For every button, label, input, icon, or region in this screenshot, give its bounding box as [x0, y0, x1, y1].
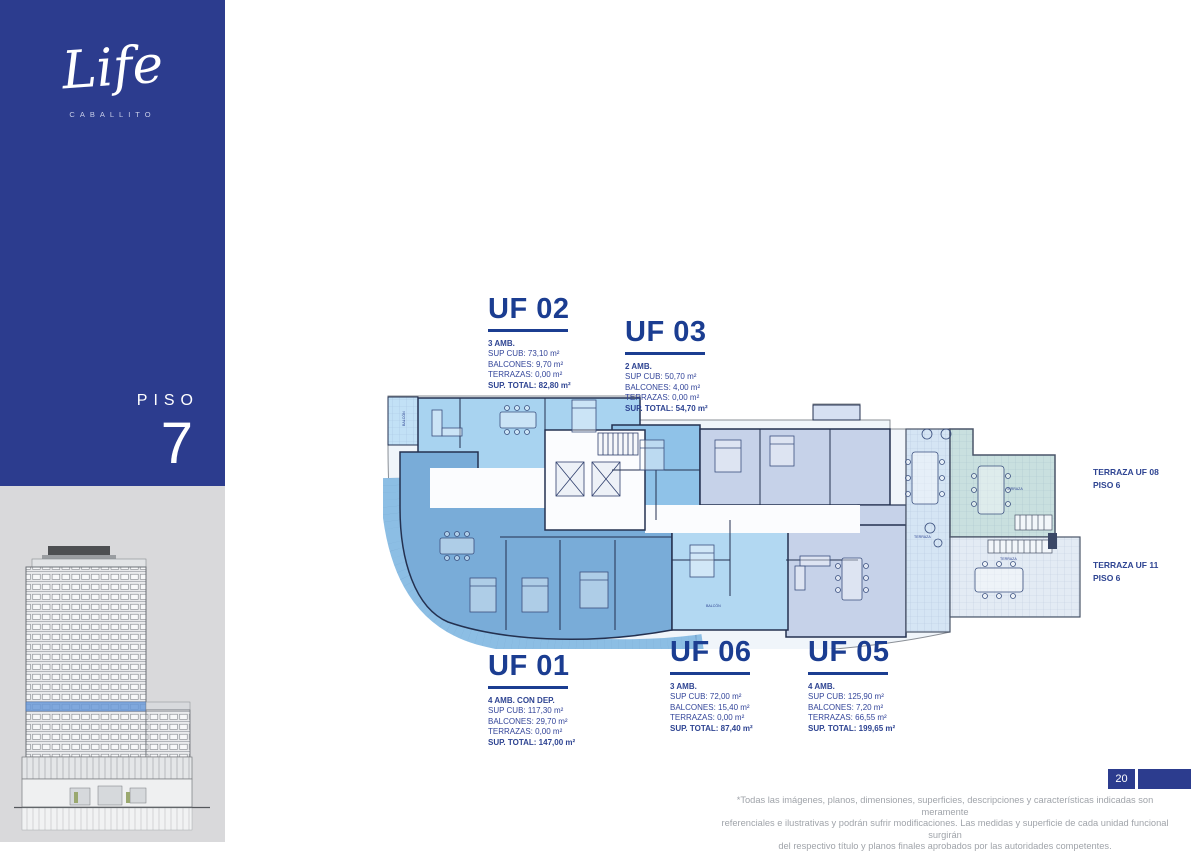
- balcon-label: BALCÓN: [706, 603, 721, 608]
- disclaimer-line: *Todas las imágenes, planos, dimensiones…: [715, 795, 1175, 818]
- unit-title-uf06: UF 06: [670, 636, 753, 669]
- unit-terrazas: TERRAZAS: 0,00 m²: [670, 713, 753, 724]
- balcon-label: BALCÓN: [401, 411, 406, 426]
- corridor-west: [430, 468, 562, 508]
- unit-stats-uf05: 4 AMB. SUP CUB: 125,90 m² BALCONES: 7,20…: [808, 682, 895, 735]
- unit-balcones: BALCONES: 7,20 m²: [808, 703, 895, 714]
- unit-terrazas: TERRAZAS: 66,55 m²: [808, 713, 895, 724]
- title-underline: [488, 686, 568, 689]
- disclaimer-line: del respectivo título y planos finales a…: [715, 841, 1175, 853]
- brand-logo-subtitle: CABALLITO: [0, 110, 225, 119]
- disclaimer-line: referenciales e ilustrativas y podrán su…: [715, 818, 1175, 841]
- terrace-title: TERRAZA UF 08: [1093, 466, 1159, 479]
- unit-stats-uf01: 4 AMB. CON DEP. SUP CUB: 117,30 m² BALCO…: [488, 696, 575, 749]
- terrace-label-uf11: TERRAZA UF 11 PISO 6: [1093, 559, 1158, 585]
- unit-sup-cub: SUP CUB: 117,30 m²: [488, 706, 575, 717]
- page-number-badge: 20: [1108, 769, 1135, 789]
- brochure-page: { "brand": { "logo_text": "Life", "logo_…: [0, 0, 1191, 842]
- elevation-floor7-highlight: [26, 702, 146, 711]
- unit-type: 4 AMB.: [808, 682, 895, 693]
- unit-stats-uf03: 2 AMB. SUP CUB: 50,70 m² BALCONES: 4,00 …: [625, 362, 708, 415]
- title-underline: [488, 329, 568, 332]
- floor-number: 7: [137, 414, 193, 475]
- unit-total: SUP. TOTAL: 82,80 m²: [488, 381, 571, 392]
- title-underline: [808, 672, 888, 675]
- terraza-label: TERRAZA: [1000, 557, 1017, 561]
- unit-balcones: BALCONES: 9,70 m²: [488, 360, 571, 371]
- unit-terrazas: TERRAZAS: 0,00 m²: [488, 727, 575, 738]
- brand-logo: Life: [0, 30, 227, 106]
- unit-title-uf02: UF 02: [488, 293, 571, 326]
- unit-sup-cub: SUP CUB: 125,90 m²: [808, 692, 895, 703]
- unit-total: SUP. TOTAL: 199,65 m²: [808, 724, 895, 735]
- unit-sup-cub: SUP CUB: 72,00 m²: [670, 692, 753, 703]
- unit-balcones: BALCONES: 4,00 m²: [625, 383, 708, 394]
- unit-title-uf03: UF 03: [625, 316, 708, 349]
- page-number: 20: [1115, 773, 1127, 785]
- unit-card-uf02: UF 02 3 AMB. SUP CUB: 73,10 m² BALCONES:…: [488, 293, 571, 391]
- unit-type: 2 AMB.: [625, 362, 708, 373]
- unit-terrazas: TERRAZAS: 0,00 m²: [625, 393, 708, 404]
- title-underline: [670, 672, 750, 675]
- unit-stats-uf06: 3 AMB. SUP CUB: 72,00 m² BALCONES: 15,40…: [670, 682, 753, 735]
- unit-balcones: BALCONES: 29,70 m²: [488, 717, 575, 728]
- unit-type: 4 AMB. CON DEP.: [488, 696, 575, 707]
- unit-title-uf05: UF 05: [808, 636, 895, 669]
- unit-card-uf05: UF 05 4 AMB. SUP CUB: 125,90 m² BALCONES…: [808, 636, 895, 734]
- unit-type: 3 AMB.: [670, 682, 753, 693]
- footer-disclaimer: *Todas las imágenes, planos, dimensiones…: [715, 795, 1175, 853]
- elevation-tower: [26, 567, 146, 757]
- unit-total: SUP. TOTAL: 147,00 m²: [488, 738, 575, 749]
- unit-sup-cub: SUP CUB: 73,10 m²: [488, 349, 571, 360]
- unit-total: SUP. TOTAL: 54,70 m²: [625, 404, 708, 415]
- corridor-east: [645, 505, 860, 533]
- elevation-low-wing: [146, 710, 190, 757]
- unit-type: 3 AMB.: [488, 339, 571, 350]
- unit-balcones: BALCONES: 15,40 m²: [670, 703, 753, 714]
- floor-indicator: PISO 7: [137, 392, 193, 475]
- unit-terrazas: TERRAZAS: 0,00 m²: [488, 370, 571, 381]
- floor-plan-drawing: BALCÓN BALCÓN TERRAZA TERRAZA TERRAZA: [383, 383, 1085, 649]
- unit-stats-uf02: 3 AMB. SUP CUB: 73,10 m² BALCONES: 9,70 …: [488, 339, 571, 392]
- floor-label: PISO: [137, 392, 199, 410]
- elevation-roof-cap: [48, 546, 110, 555]
- sidebar-panel: Life CABALLITO PISO 7: [0, 0, 225, 486]
- unit-sup-cub: SUP CUB: 50,70 m²: [625, 372, 708, 383]
- title-underline: [625, 352, 705, 355]
- building-elevation-drawing: [12, 542, 212, 840]
- unit-title-uf01: UF 01: [488, 650, 575, 683]
- terrace-floor: PISO 6: [1093, 479, 1159, 492]
- unit-total: SUP. TOTAL: 87,40 m²: [670, 724, 753, 735]
- terraza-label: TERRAZA: [1006, 487, 1023, 491]
- terrace-title: TERRAZA UF 11: [1093, 559, 1158, 572]
- unit-card-uf03: UF 03 2 AMB. SUP CUB: 50,70 m² BALCONES:…: [625, 316, 708, 414]
- terrace-floor: PISO 6: [1093, 572, 1158, 585]
- terraza-label: TERRAZA: [914, 535, 931, 539]
- terrace-label-uf08: TERRAZA UF 08 PISO 6: [1093, 466, 1159, 492]
- page-number-bar: [1138, 769, 1191, 789]
- uf05-balcony: [813, 405, 860, 420]
- unit-card-uf06: UF 06 3 AMB. SUP CUB: 72,00 m² BALCONES:…: [670, 636, 753, 734]
- unit-card-uf01: UF 01 4 AMB. CON DEP. SUP CUB: 117,30 m²…: [488, 650, 575, 748]
